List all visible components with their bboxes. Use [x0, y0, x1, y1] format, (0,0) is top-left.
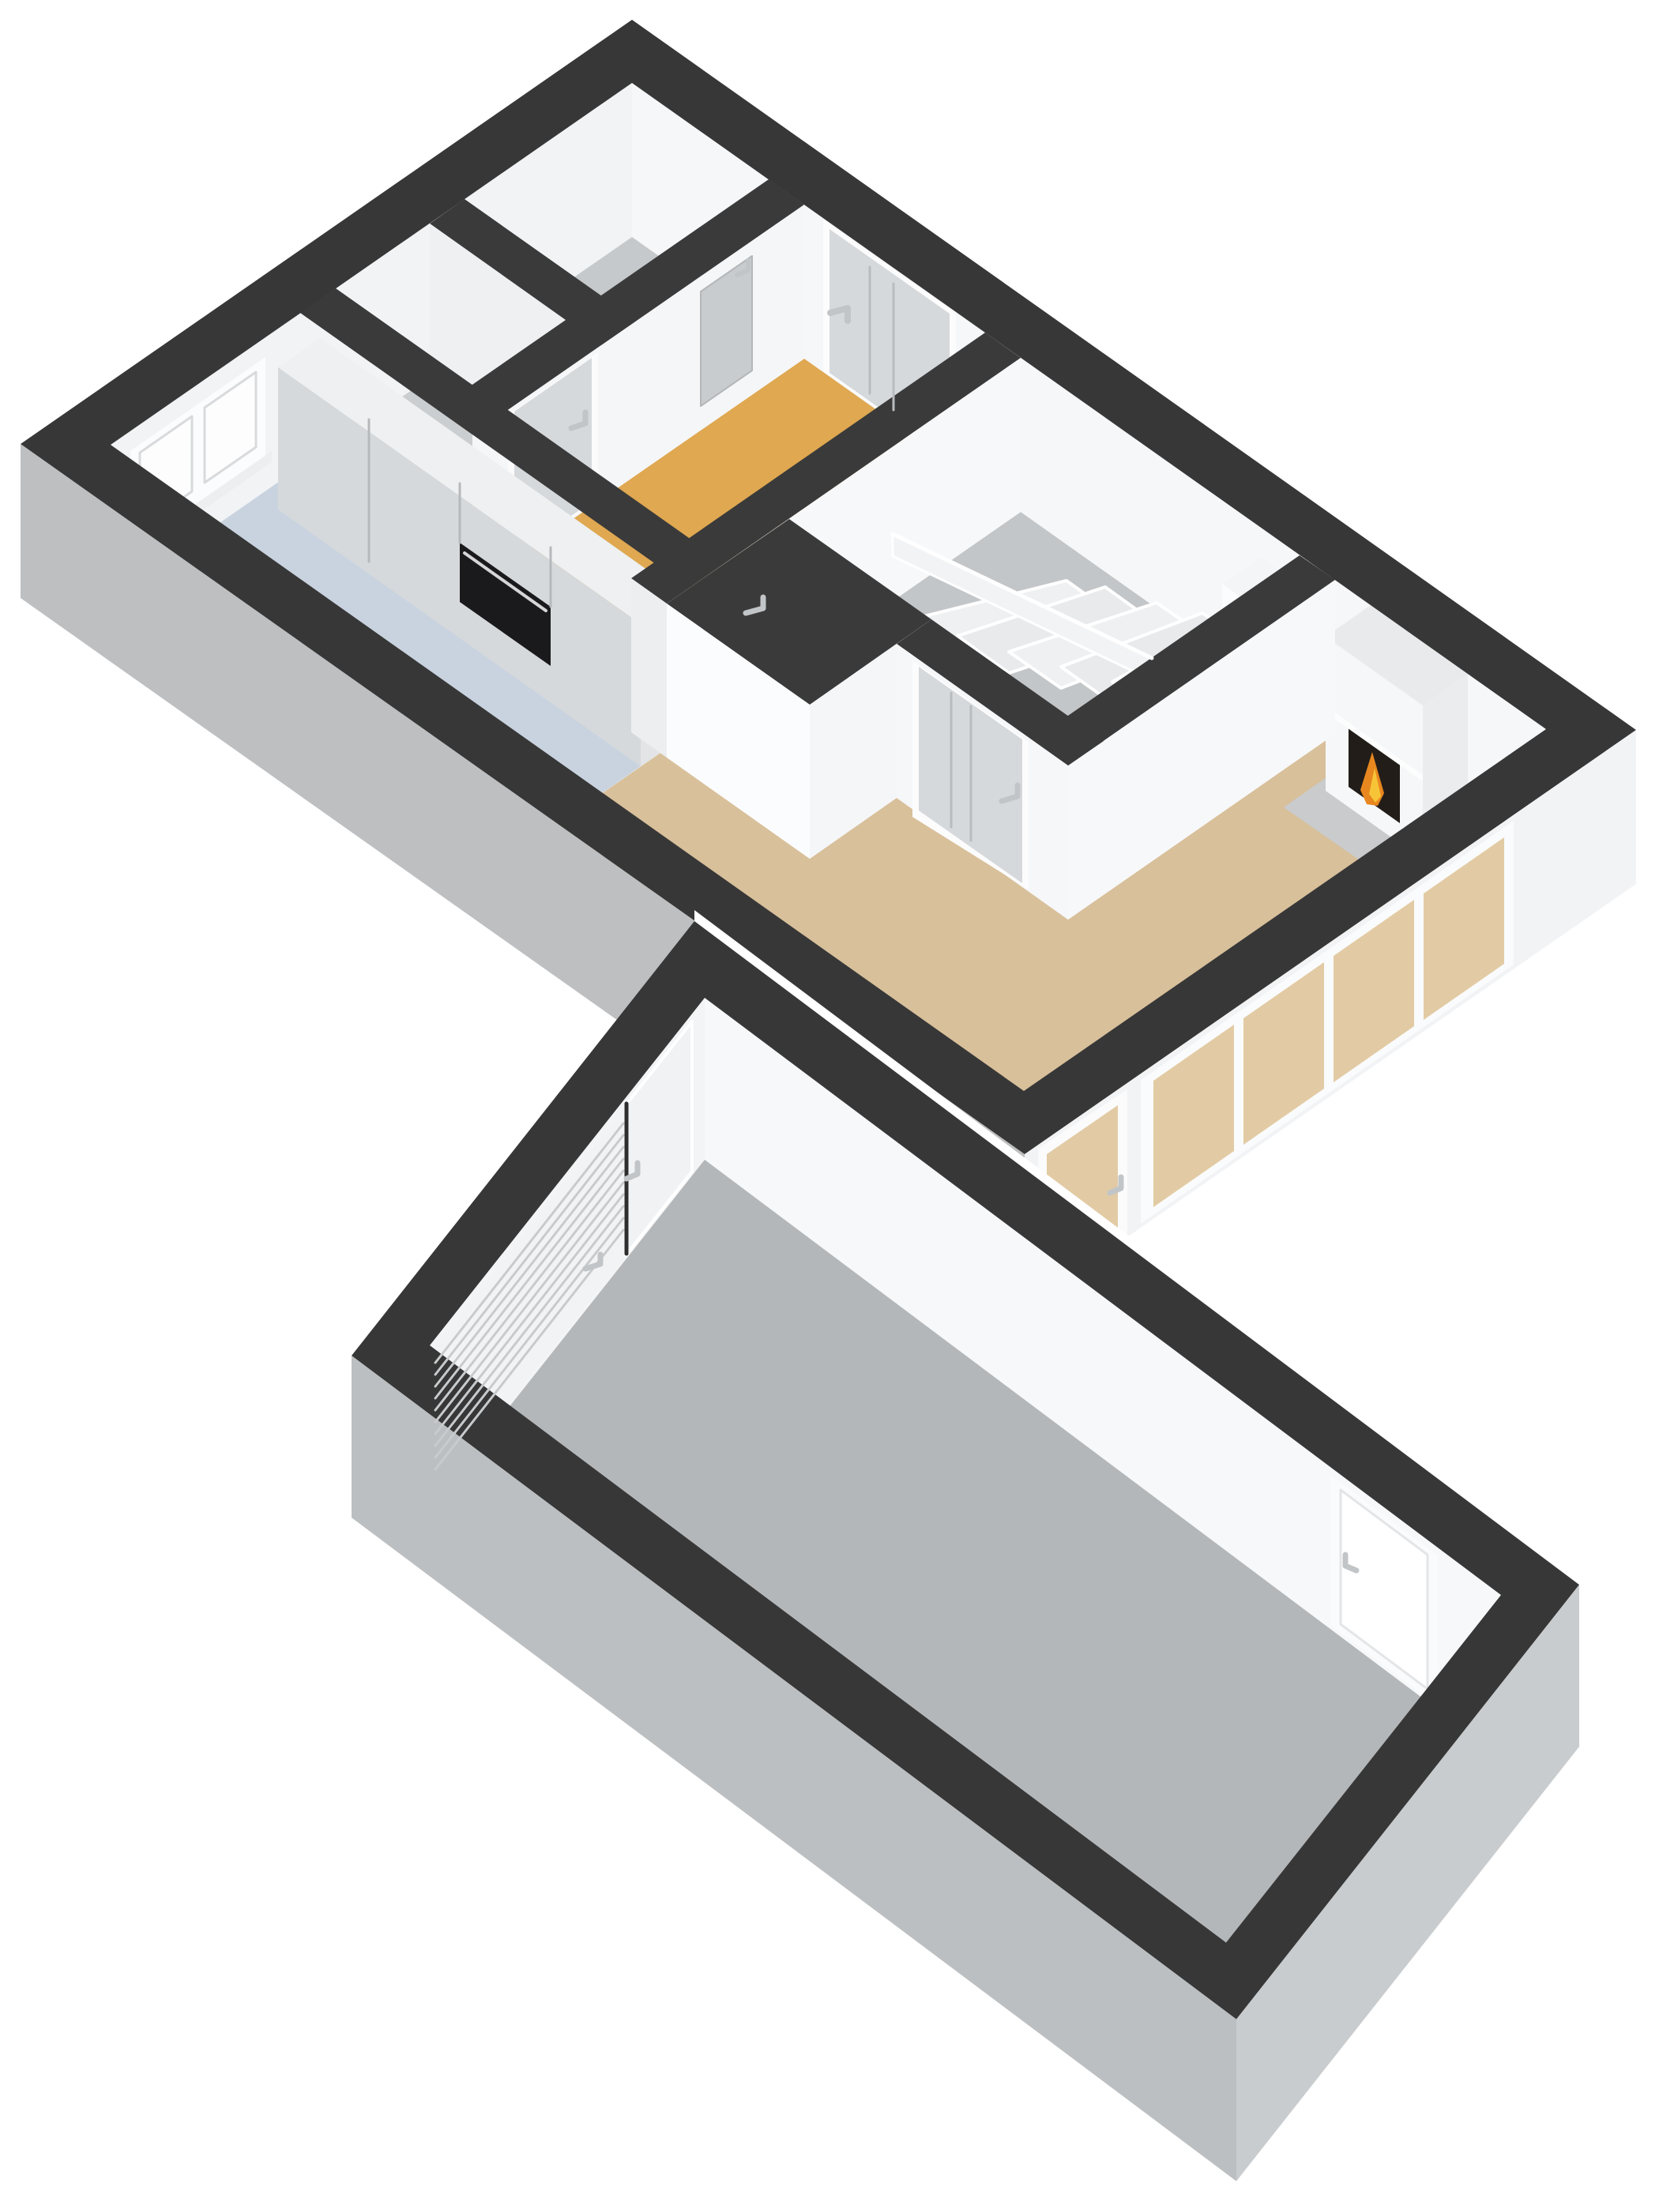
floorplan-3d-canvas [0, 0, 1659, 2212]
floorplan-3d-render [0, 0, 1659, 2212]
hall-east-wall-end [631, 578, 667, 758]
